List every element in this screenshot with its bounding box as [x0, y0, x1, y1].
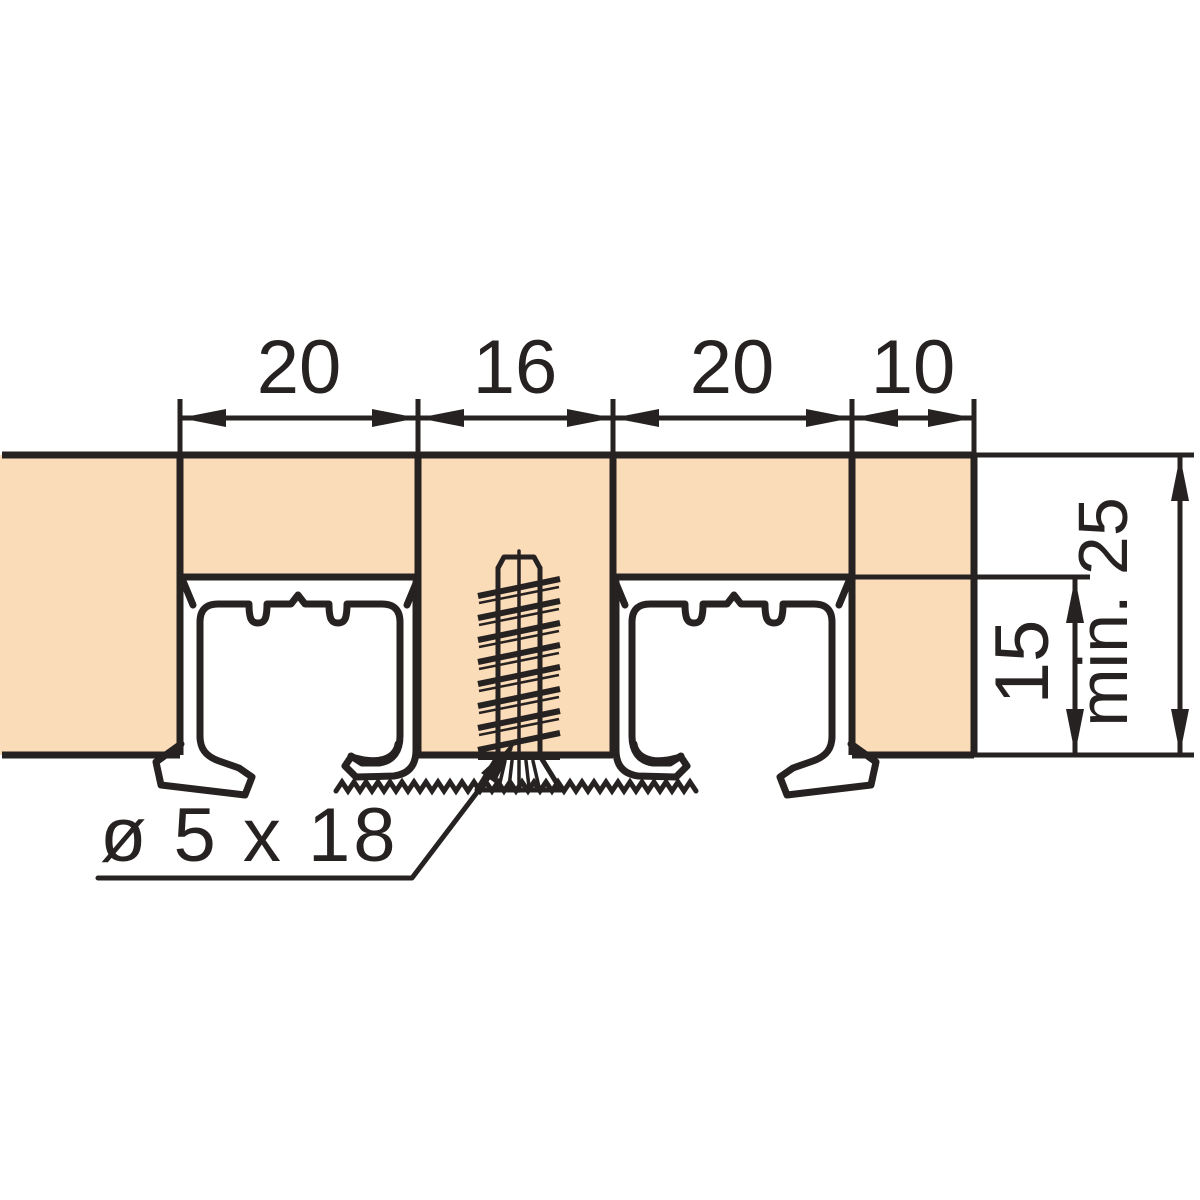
top-dimensions: 20 16 20 10 [180, 325, 974, 457]
furniture-track-section-drawing: 20 16 20 10 min. 25 15 ø 5 x 18 [0, 0, 1200, 1200]
dimension-label-10: 10 [871, 325, 956, 410]
dimension-label-20-left: 20 [257, 325, 342, 410]
dimension-label-15: 15 [980, 620, 1065, 705]
callout-label: ø 5 x 18 [100, 793, 399, 878]
dimension-label-20-right: 20 [690, 325, 775, 410]
dimension-label-16: 16 [473, 325, 558, 410]
